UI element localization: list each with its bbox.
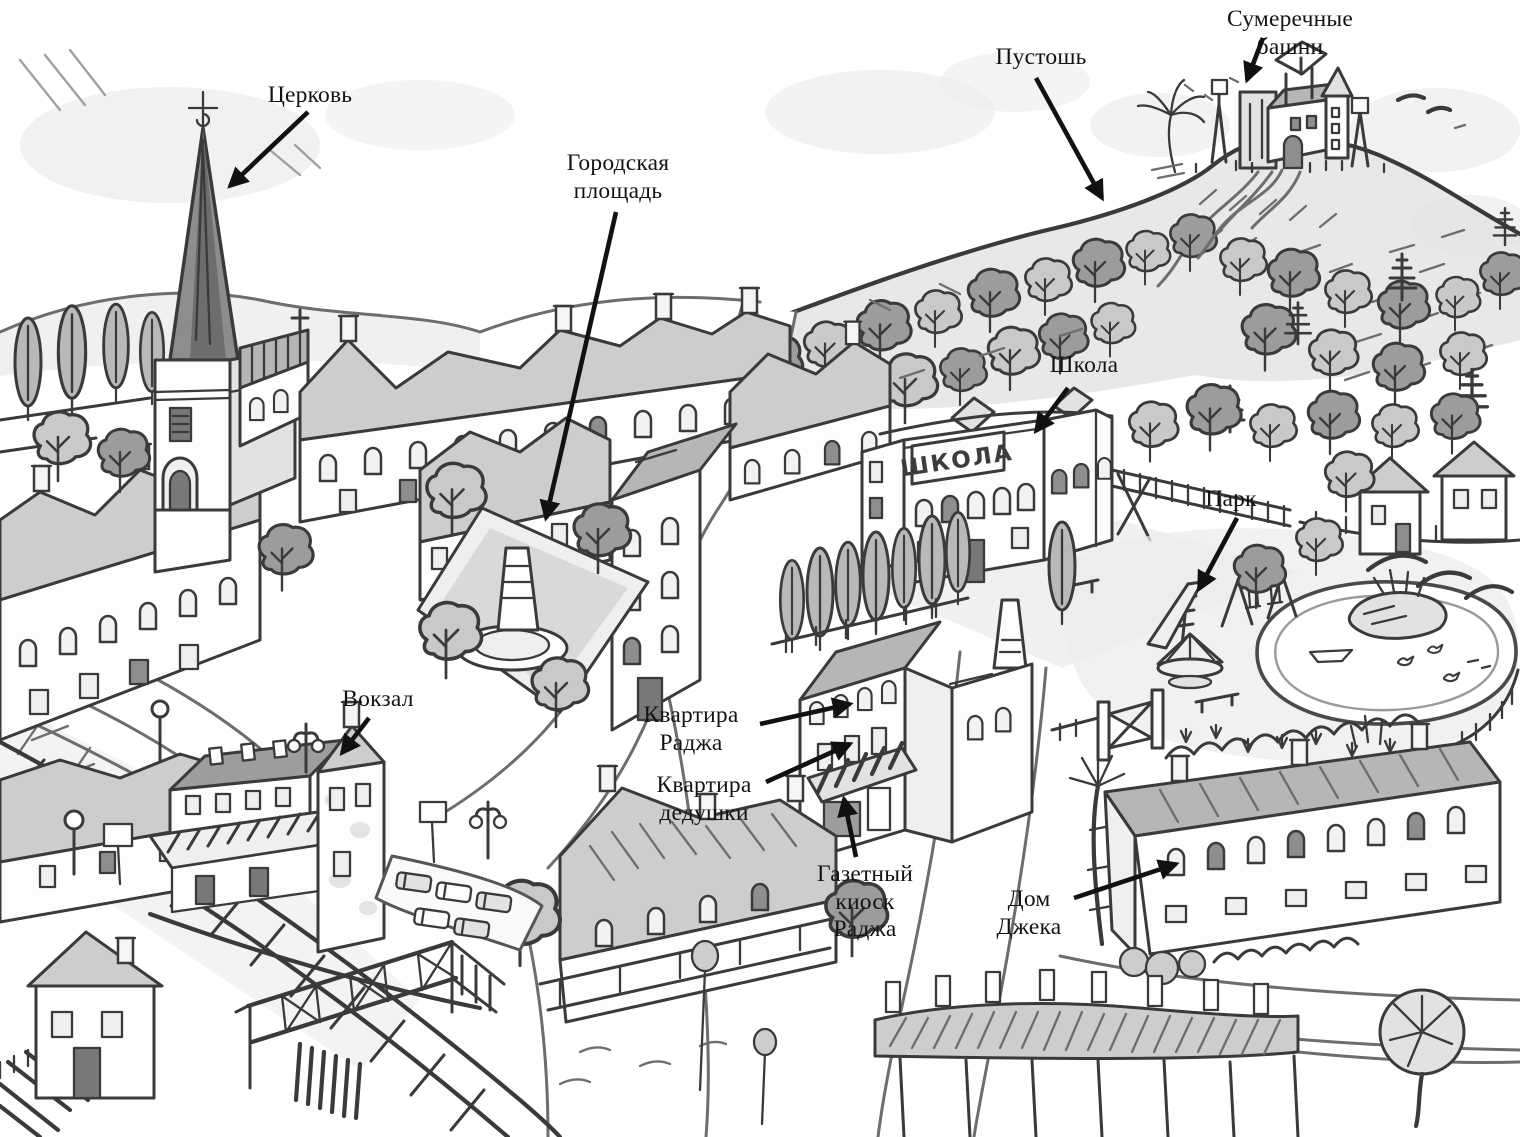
park	[1049, 512, 1520, 761]
school-label: Школа	[1050, 352, 1119, 380]
town-map-illustration: ШКОЛА	[0, 0, 1520, 1137]
parking-lot	[376, 856, 542, 950]
raj-flat-label: Квартира Раджа	[644, 702, 739, 757]
park-label: Парк	[1205, 486, 1256, 514]
raj-newsstand-label: Газетный киоск Раджа	[817, 861, 913, 944]
roadside-tree	[1380, 990, 1464, 1126]
church-label: Церковь	[268, 82, 352, 110]
jack-house-label: Дом Джека	[997, 886, 1062, 941]
town-square-label: Городская площадь	[567, 150, 670, 205]
station-label: Вокзал	[342, 686, 413, 714]
map-drawing: ШКОЛА	[0, 0, 1520, 1137]
heath-label: Пустошь	[995, 44, 1086, 72]
twilight-towers-label: Сумеречные башни	[1227, 6, 1353, 61]
grandpa-flat-label: Квартира дедушки	[657, 772, 752, 827]
jack-house-row	[1070, 724, 1500, 984]
